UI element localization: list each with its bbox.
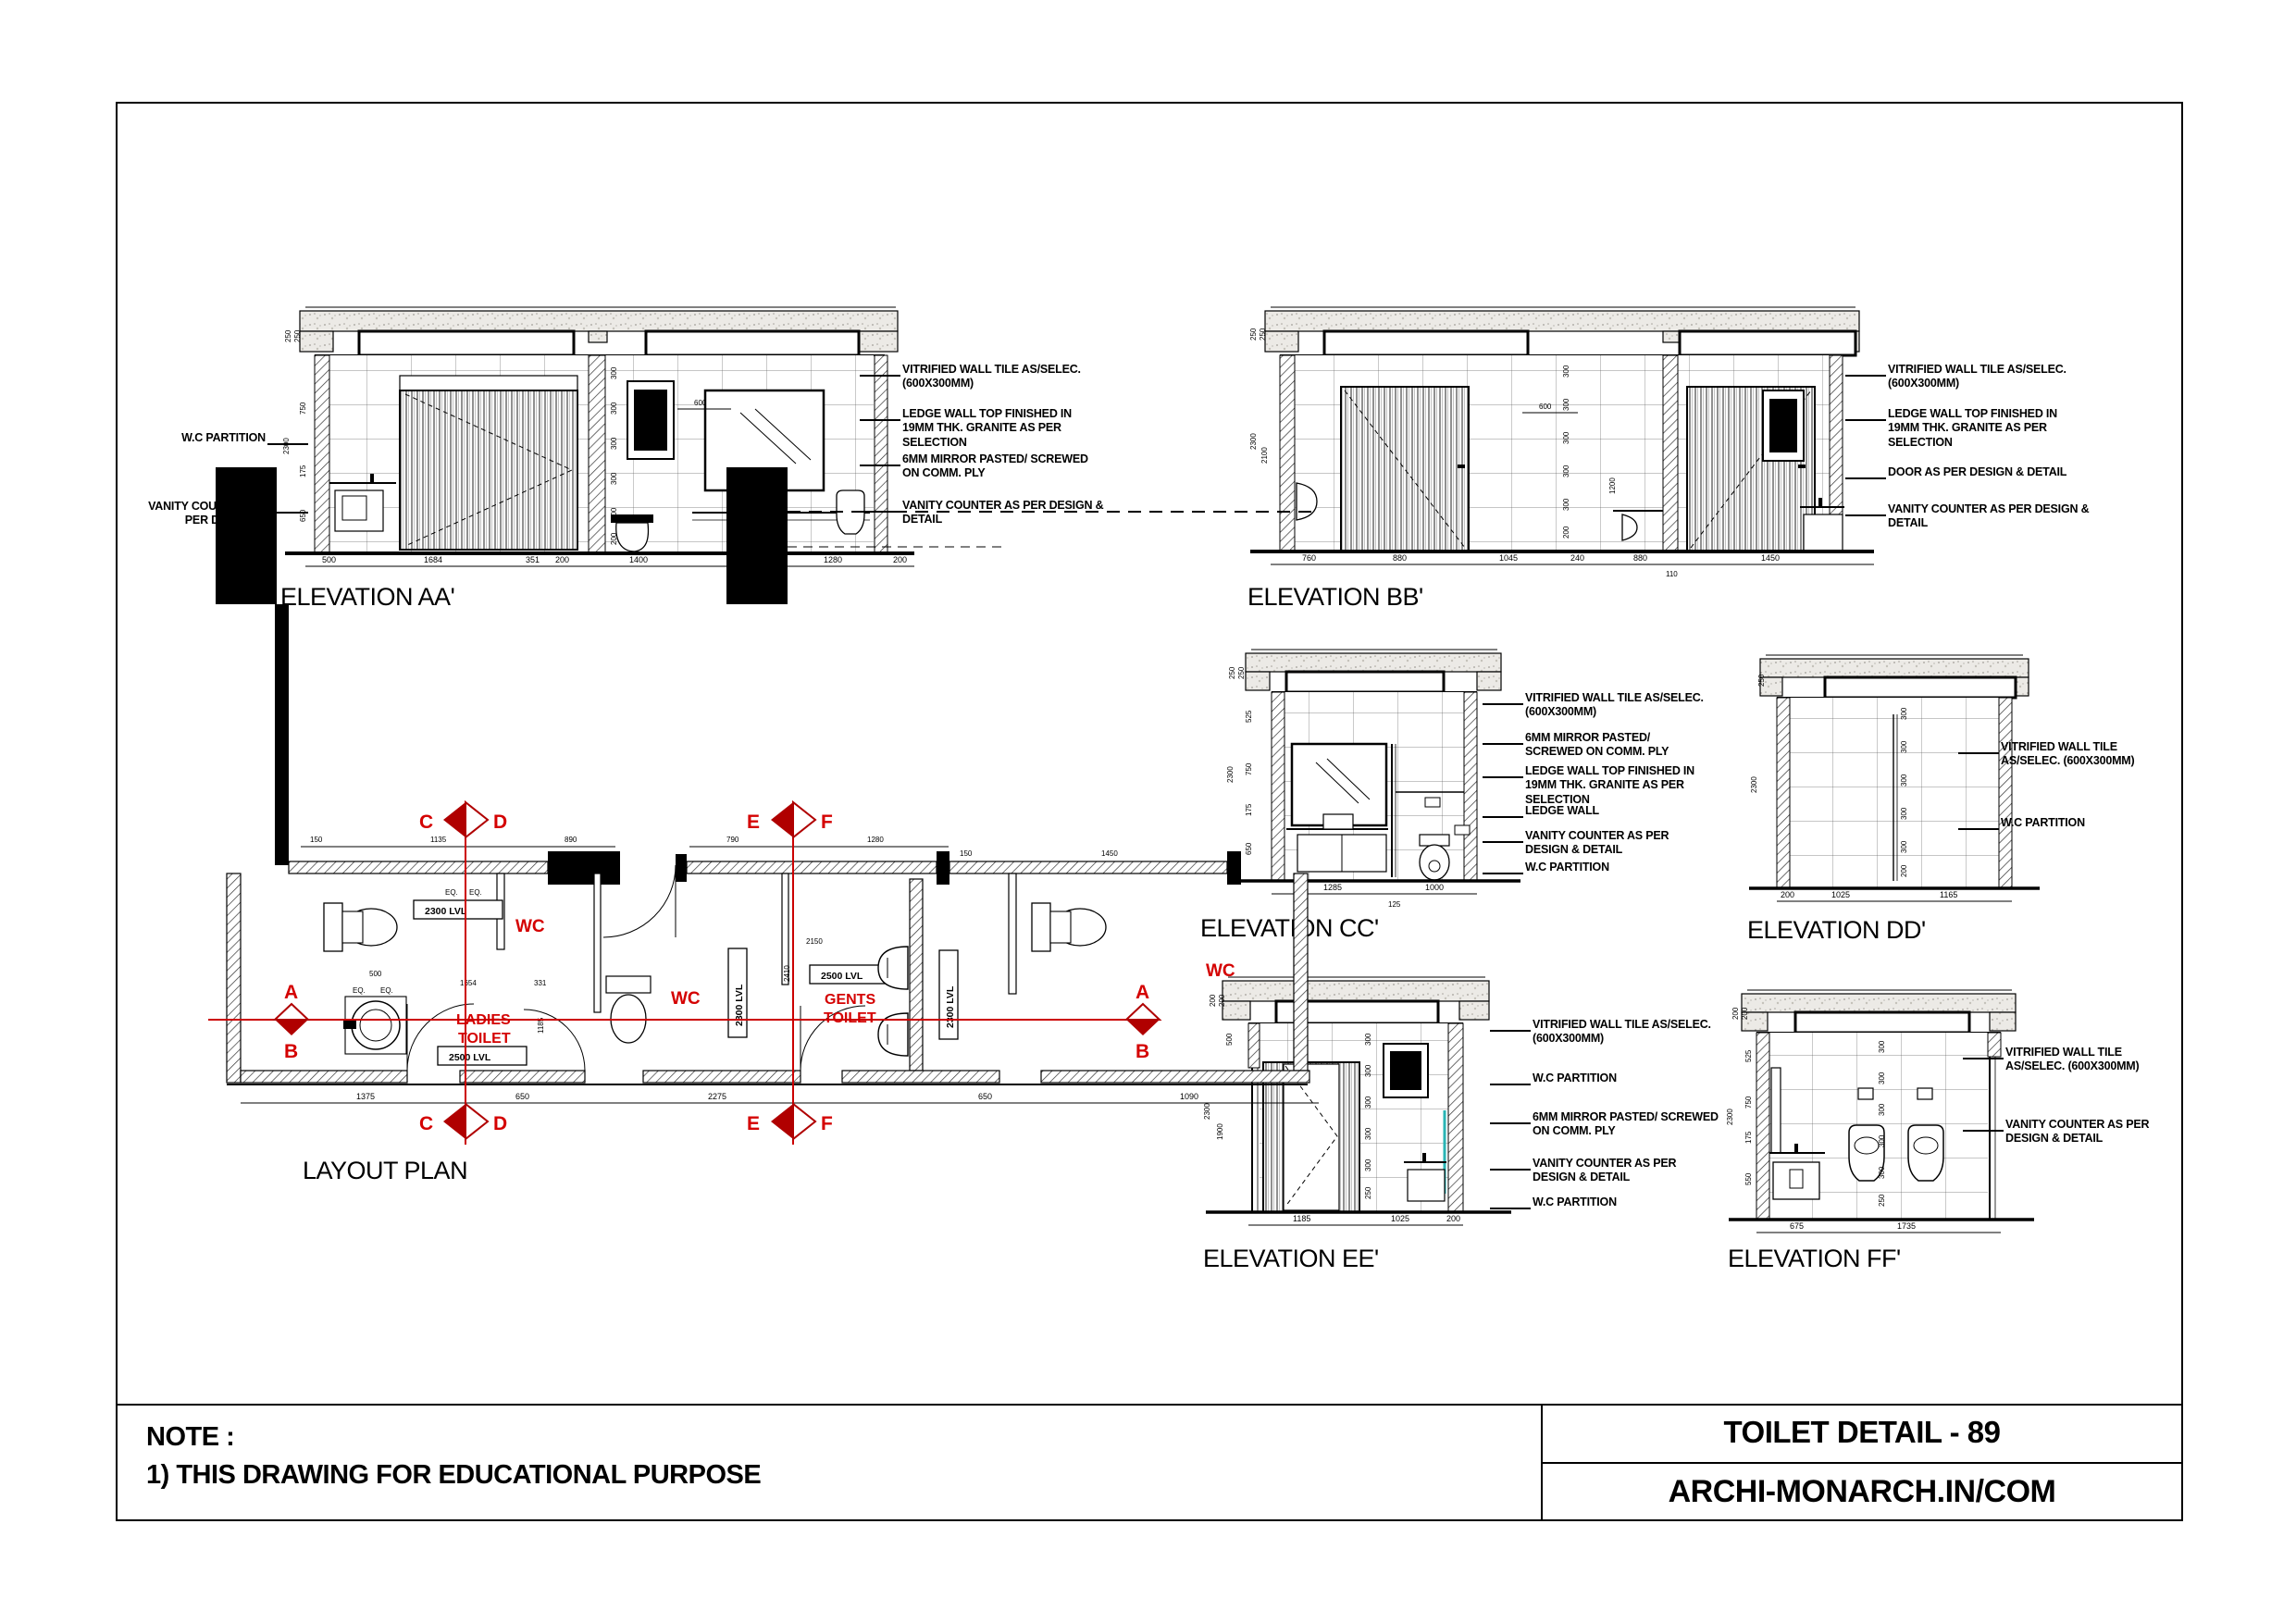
svg-text:1135: 1135	[430, 836, 447, 844]
plan-bottom-dims: 1375 650 2275 650 1090	[241, 1092, 1319, 1103]
svg-text:2300 LVL: 2300 LVL	[425, 906, 467, 917]
annotation-ledge-wall: LEDGE WALL	[1525, 804, 1710, 818]
svg-text:300: 300	[1562, 365, 1570, 378]
svg-text:300: 300	[1878, 1134, 1886, 1147]
elevation-ff-drawing: 300 300 300 300 300 250 675 1735 200 200…	[1723, 986, 2041, 1245]
annotation-vanity-counter: VANITY COUNTER AS PER DESIGN & DETAIL	[2005, 1118, 2163, 1146]
urinal-2	[1908, 1125, 1943, 1181]
bottom-dimension-line: 760 880 1045 240 880 1450 110	[1271, 553, 1874, 578]
svg-text:600: 600	[1539, 403, 1552, 411]
section-line-cd: C D C D	[419, 802, 507, 1145]
svg-text:C: C	[419, 1113, 433, 1134]
level-box-2300-rot-2: 2300 LVL	[939, 950, 958, 1039]
svg-text:790: 790	[726, 836, 739, 844]
annotation-wall-tile: VITRIFIED WALL TILE AS/SELEC. (600X300MM…	[1888, 363, 2090, 391]
svg-text:650: 650	[515, 1092, 529, 1101]
plan-top-dims: 150 1135 890 790 1280	[301, 836, 949, 847]
svg-text:A: A	[1136, 982, 1149, 1003]
svg-text:1025: 1025	[1831, 890, 1850, 899]
svg-text:1185: 1185	[1293, 1214, 1310, 1223]
svg-text:880: 880	[1633, 553, 1647, 563]
svg-text:2300: 2300	[1726, 1109, 1734, 1125]
wash-basin	[1769, 1144, 1825, 1199]
svg-text:300: 300	[1364, 1033, 1372, 1046]
room-label-wc-1: WC	[515, 917, 545, 936]
svg-text:2150: 2150	[806, 937, 823, 946]
annotation-wc-partition: W.C PARTITION	[1525, 861, 1710, 874]
room-label-gents-1: GENTS	[825, 992, 875, 1008]
svg-text:500: 500	[369, 970, 382, 978]
annotation-door: DOOR AS PER DESIGN & DETAIL	[1888, 465, 2090, 479]
elevation-ee-title: ELEVATION EE'	[1203, 1245, 1379, 1273]
svg-text:250: 250	[1249, 328, 1258, 341]
drawing-sheet: NOTE : 1) THIS DRAWING FOR EDUCATIONAL P…	[0, 0, 2296, 1623]
bottom-dimension-line: 200 1025 1165	[1777, 890, 2012, 901]
svg-text:250: 250	[1259, 328, 1267, 341]
level-box-2300-ladies: 2300 LVL	[414, 900, 503, 919]
elevation-dd-title: ELEVATION DD'	[1747, 916, 1926, 945]
svg-text:525: 525	[1744, 1049, 1753, 1062]
titleblock-top-line	[116, 1404, 2181, 1406]
svg-text:110: 110	[1666, 570, 1678, 578]
window	[1763, 390, 1804, 461]
svg-text:300: 300	[1562, 431, 1570, 444]
svg-text:300: 300	[1364, 1127, 1372, 1140]
annotation-wall-tile: VITRIFIED WALL TILE AS/SELEC. (600X300MM…	[1533, 1018, 1722, 1047]
svg-text:200: 200	[1731, 1007, 1740, 1020]
annotation-mirror: 6MM MIRROR PASTED/ SCREWED ON COMM. PLY	[1533, 1110, 1722, 1139]
svg-text:600: 600	[694, 399, 707, 407]
elevation-ff-title: ELEVATION FF'	[1728, 1245, 1901, 1273]
column-left	[216, 467, 277, 604]
svg-text:300: 300	[1900, 707, 1908, 720]
annotation-ledge-wall-top: LEDGE WALL TOP FINISHED IN 19MM THK. GRA…	[1525, 764, 1724, 807]
svg-text:250: 250	[1364, 1186, 1372, 1199]
room-label-wc-3: WC	[1206, 961, 1235, 981]
svg-text:300: 300	[1364, 1064, 1372, 1077]
svg-text:1045: 1045	[1499, 553, 1518, 563]
svg-text:1450: 1450	[1761, 553, 1780, 563]
svg-text:2300 LVL: 2300 LVL	[945, 985, 956, 1028]
svg-text:880: 880	[1393, 553, 1407, 563]
svg-text:200: 200	[1446, 1214, 1460, 1223]
svg-text:C: C	[419, 811, 433, 833]
annotation-wall-tile: VITRIFIED WALL TILE AS/SELEC. (600X300MM…	[2005, 1046, 2181, 1074]
svg-text:A: A	[284, 982, 298, 1003]
svg-text:F: F	[821, 1113, 833, 1134]
svg-text:EQ.: EQ.	[353, 986, 366, 995]
note-heading: NOTE :	[146, 1422, 234, 1453]
svg-text:1200: 1200	[1608, 477, 1617, 494]
elevation-dd-drawing: 300 300 300 300 300 200 200 1025 1165 25…	[1744, 650, 2045, 916]
titleblock-mid-line	[1541, 1462, 2181, 1464]
column-right	[726, 467, 788, 604]
svg-text:B: B	[1136, 1041, 1149, 1062]
annotation-ledge-wall: LEDGE WALL TOP FINISHED IN 19MM THK. GRA…	[902, 407, 1104, 450]
wash-basin-plan	[343, 997, 406, 1054]
svg-text:2500 LVL: 2500 LVL	[821, 971, 863, 982]
svg-text:240: 240	[1570, 553, 1584, 563]
svg-text:2275: 2275	[708, 1092, 726, 1101]
annotation-wall-tile: VITRIFIED WALL TILE AS/SELEC. (600X300MM…	[902, 363, 1104, 391]
svg-text:890: 890	[565, 836, 577, 844]
svg-text:650: 650	[978, 1092, 992, 1101]
flush-valve-2	[1917, 1088, 1932, 1099]
svg-text:300: 300	[1878, 1103, 1886, 1116]
svg-text:2300: 2300	[1249, 433, 1258, 450]
louvered-door-1	[1341, 387, 1469, 551]
annotation-wc-partition-2: W.C PARTITION	[1533, 1196, 1722, 1209]
svg-text:200: 200	[1562, 526, 1570, 539]
svg-text:B: B	[284, 1041, 298, 1062]
annotation-wc-partition: W.C PARTITION	[1533, 1072, 1722, 1085]
elevation-bb-drawing: 300 300 300 300 300 200 600 1200 760 880…	[1245, 302, 1879, 579]
svg-text:200: 200	[1781, 890, 1794, 899]
svg-text:300: 300	[1900, 807, 1908, 820]
svg-text:EQ.: EQ.	[469, 888, 482, 897]
flush-valve-1	[1858, 1088, 1873, 1099]
room-label-wc-2: WC	[671, 989, 701, 1009]
annotation-wc-partition: W.C PARTITION	[2001, 816, 2149, 830]
svg-text:1090: 1090	[1180, 1092, 1198, 1101]
wc-pan-plan-2	[606, 976, 651, 1043]
annotation-mirror: 6MM MIRROR PASTED/ SCREWED ON COMM. PLY	[1525, 731, 1710, 760]
svg-text:250: 250	[1757, 674, 1766, 687]
svg-text:2300: 2300	[282, 438, 291, 454]
annotation-vanity-counter: VANITY COUNTER AS PER DESIGN & DETAIL	[1888, 502, 2090, 531]
svg-text:300: 300	[1562, 398, 1570, 411]
svg-text:E: E	[747, 811, 760, 833]
svg-text:331: 331	[534, 979, 547, 987]
svg-text:150: 150	[310, 836, 323, 844]
annotation-vanity-counter: VANITY COUNTER AS PER DESIGN & DETAIL	[1533, 1157, 1708, 1185]
svg-text:1025: 1025	[1391, 1214, 1409, 1223]
svg-text:300: 300	[1900, 840, 1908, 853]
svg-text:300: 300	[1878, 1072, 1886, 1084]
svg-text:300: 300	[610, 402, 618, 415]
svg-text:300: 300	[1900, 774, 1908, 787]
svg-text:1450: 1450	[1101, 849, 1118, 858]
svg-text:175: 175	[1744, 1131, 1753, 1144]
level-box-2500-ladies: 2500 LVL	[438, 1047, 527, 1065]
drawing-title: TOILET DETAIL - 89	[1543, 1415, 2181, 1450]
svg-text:1165: 1165	[1940, 890, 1957, 899]
svg-text:1000: 1000	[1425, 883, 1444, 892]
bottom-dimension-line: 1185 1025 200	[1248, 1214, 1463, 1225]
svg-text:300: 300	[1562, 465, 1570, 477]
svg-text:F: F	[821, 811, 833, 833]
svg-text:125: 125	[1388, 900, 1401, 909]
svg-text:200: 200	[1900, 864, 1908, 877]
svg-text:675: 675	[1790, 1221, 1804, 1231]
svg-text:2410: 2410	[783, 965, 791, 982]
svg-text:300: 300	[1364, 1096, 1372, 1109]
note-item: 1) THIS DRAWING FOR EDUCATIONAL PURPOSE	[146, 1460, 761, 1491]
svg-text:1654: 1654	[460, 979, 477, 987]
svg-text:2300: 2300	[1750, 776, 1758, 793]
svg-text:D: D	[493, 1113, 507, 1134]
svg-text:300: 300	[610, 366, 618, 379]
svg-text:300: 300	[1364, 1158, 1372, 1171]
room-label-gents-2: TOILET	[824, 1010, 876, 1026]
svg-text:EQ.: EQ.	[380, 986, 393, 995]
website: ARCHI-MONARCH.IN/COM	[1543, 1474, 2181, 1510]
svg-text:250: 250	[1878, 1194, 1886, 1207]
svg-text:300: 300	[1562, 498, 1570, 511]
left-dimension-stack: 200 200 525 750 175 550 2300	[1726, 1007, 1753, 1185]
svg-text:EQ.: EQ.	[445, 888, 458, 897]
bottom-dimension-line: 675 1735	[1756, 1221, 2001, 1233]
svg-text:300: 300	[1900, 740, 1908, 753]
svg-text:300: 300	[610, 437, 618, 450]
level-box-2300-rot-1: 2300 LVL	[728, 948, 747, 1037]
svg-text:250: 250	[284, 329, 292, 342]
svg-text:2500 LVL: 2500 LVL	[449, 1052, 491, 1063]
wc-pan-plan-3	[1032, 903, 1106, 951]
svg-text:750: 750	[299, 402, 307, 415]
svg-text:200: 200	[1741, 1007, 1749, 1020]
annotation-ledge-wall: LEDGE WALL TOP FINISHED IN 19MM THK. GRA…	[1888, 407, 2090, 450]
svg-text:250: 250	[293, 329, 302, 342]
svg-text:150: 150	[960, 849, 973, 858]
wc-pan-plan-1	[324, 903, 397, 951]
svg-text:300: 300	[1878, 1040, 1886, 1053]
annotation-wall-tile: VITRIFIED WALL TILE AS/SELEC. (600X300MM…	[1525, 691, 1710, 720]
svg-text:E: E	[747, 1113, 760, 1134]
annotation-vanity-counter: VANITY COUNTER AS PER DESIGN & DETAIL	[1525, 829, 1701, 858]
svg-text:750: 750	[1744, 1096, 1753, 1109]
svg-text:D: D	[493, 811, 507, 833]
svg-text:550: 550	[1744, 1172, 1753, 1185]
svg-text:300: 300	[1878, 1166, 1886, 1179]
annotation-wall-tile: VITRIFIED WALL TILE AS/SELEC. (600X300MM…	[2001, 740, 2149, 769]
layout-plan-drawing: 2300 LVL EQ. EQ. WC EQ. EQ. LADIES TOILE…	[171, 458, 1337, 1180]
svg-text:1280: 1280	[867, 836, 884, 844]
layout-plan-title: LAYOUT PLAN	[303, 1157, 467, 1185]
window	[1384, 1044, 1428, 1097]
annotation-wc-partition: W.C PARTITION	[143, 431, 266, 445]
svg-text:1735: 1735	[1897, 1221, 1916, 1231]
svg-text:1375: 1375	[356, 1092, 375, 1101]
window	[627, 381, 674, 459]
